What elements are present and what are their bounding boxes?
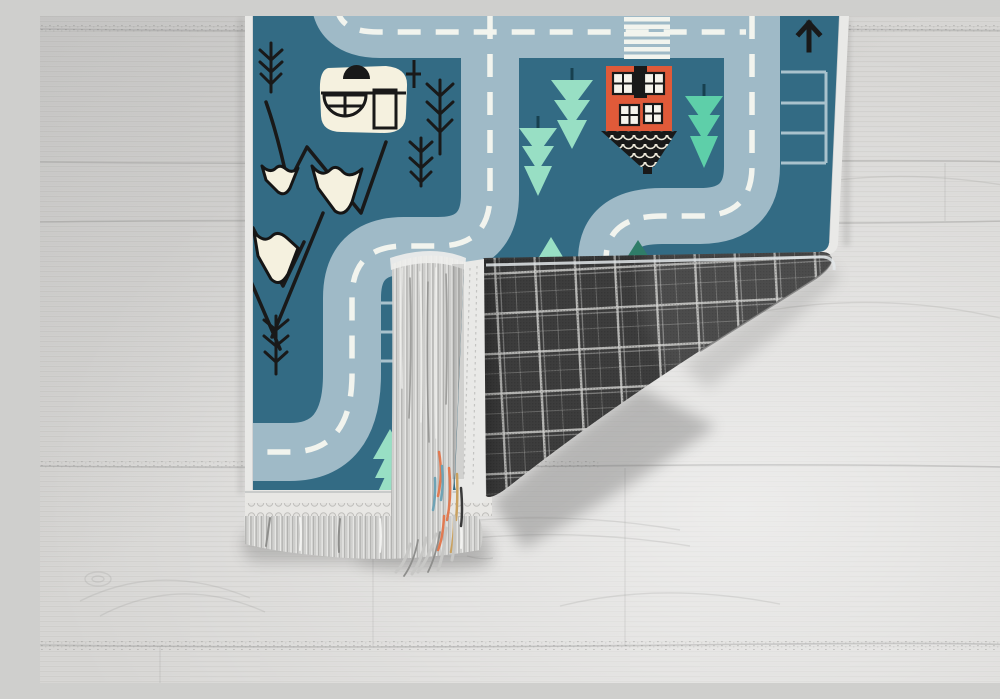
fold-fringe xyxy=(390,251,466,576)
photo-canvas xyxy=(40,16,1000,683)
fringe-knot-row xyxy=(246,503,492,516)
rug-bottom-hem xyxy=(245,490,492,516)
product-photo: Children's play rug with teal road-map p… xyxy=(40,16,1000,683)
